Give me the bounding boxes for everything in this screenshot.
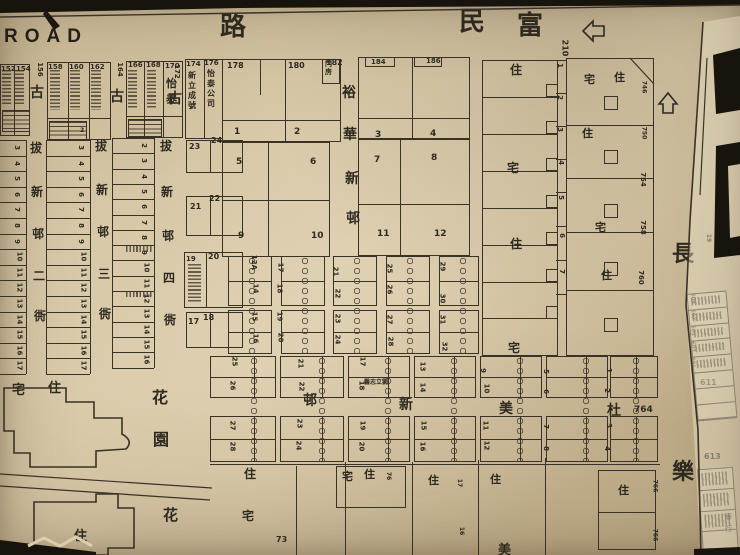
map-overlay	[0, 0, 740, 555]
bottom-left-fold-highlight	[28, 537, 92, 546]
garden-lane-line	[0, 486, 210, 500]
villa-footprint	[34, 494, 134, 555]
left-arrow-icon	[583, 21, 604, 41]
adjacent-print-fragment	[713, 48, 740, 114]
road-label-en: ROAD	[4, 26, 88, 48]
old-street-map-photo: ROAD 34567891011121314151617345678910111…	[0, 0, 740, 555]
corner-cut-line	[630, 58, 654, 84]
villa-footprint	[4, 388, 129, 467]
garden-lane-line	[0, 474, 212, 488]
up-arrow-icon	[659, 93, 677, 113]
bottom-left-black-edge	[0, 540, 96, 555]
